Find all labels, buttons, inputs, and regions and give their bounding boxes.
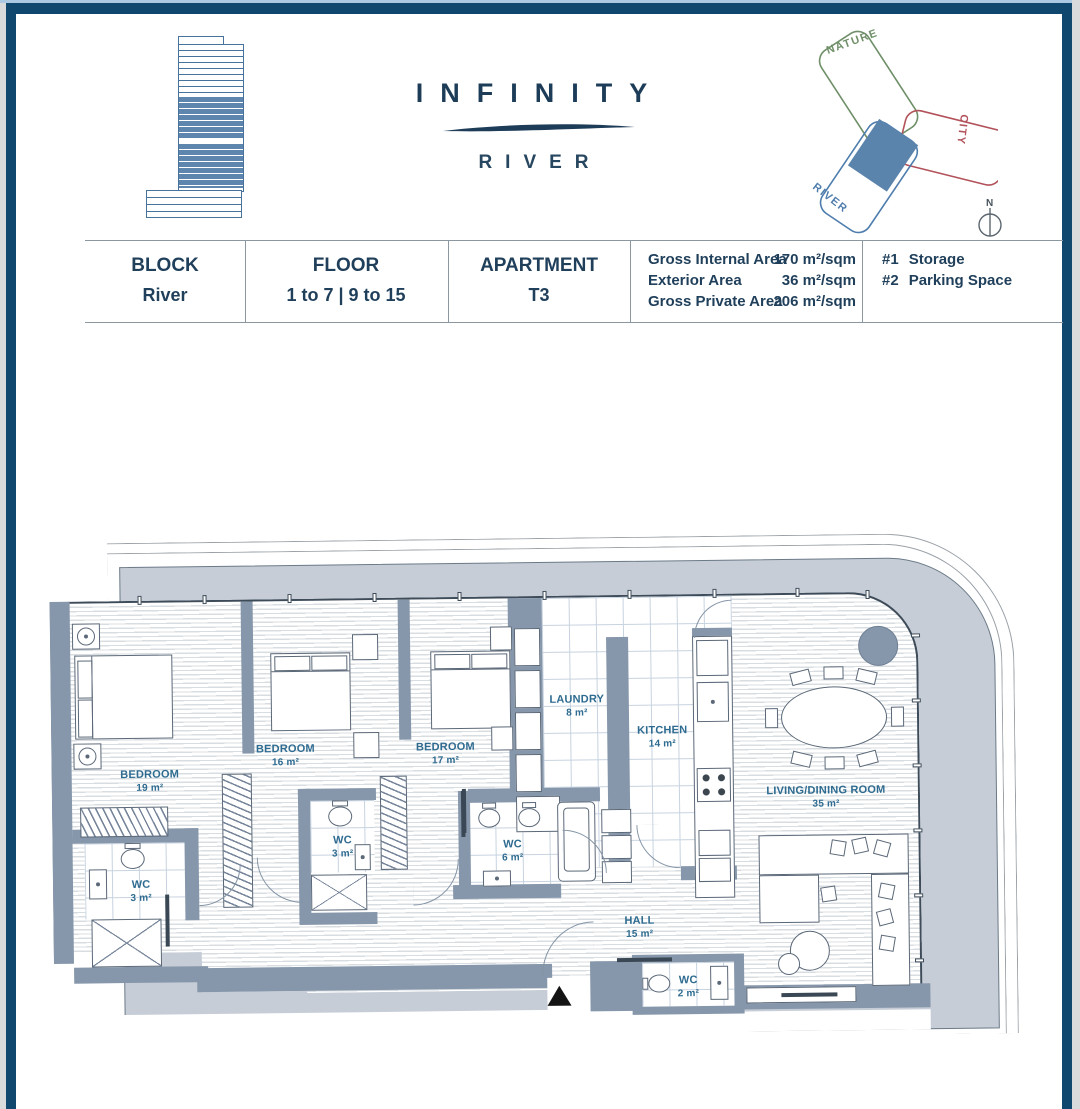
kitchen-cabinet <box>699 858 731 882</box>
room-label-laundry: LAUNDRY8 m² <box>549 693 604 720</box>
room-label-wc3a: WC3 m² <box>130 879 152 906</box>
extra-row: #2Parking Space <box>882 272 1012 289</box>
door-leaf <box>462 789 467 833</box>
room-label-wc3b: WC3 m² <box>332 834 354 861</box>
brand-subtitle: RIVER <box>390 152 690 174</box>
extra-label: Parking Space <box>909 272 1012 289</box>
room-label-kitchen: KITCHEN14 m² <box>637 724 688 751</box>
wall-hall-bottom-left <box>197 964 552 992</box>
brand-swoosh-icon <box>443 122 635 134</box>
cushion <box>820 885 837 902</box>
window-tick <box>372 593 376 602</box>
dining-chair <box>765 708 778 728</box>
area-value: 36 m²/sqm <box>782 272 856 289</box>
window-tick <box>712 589 716 598</box>
laundry-cabinet <box>514 670 540 708</box>
site-label-river: RIVER <box>810 181 850 216</box>
bed-1 <box>74 654 173 739</box>
window-tick <box>202 595 206 604</box>
tower-logo-icon <box>178 44 244 192</box>
wardrobe-bed3 <box>380 776 408 870</box>
area-name: Gross Internal Area <box>648 251 787 268</box>
nightstand <box>353 732 379 758</box>
window-tick <box>913 828 922 832</box>
nightstand <box>490 626 512 650</box>
floor-value: 1 to 7 | 9 to 15 <box>266 285 426 306</box>
wardrobe-bed1 <box>80 807 168 838</box>
window-tick <box>865 590 869 599</box>
tower-logo-base <box>146 190 242 218</box>
cushion <box>851 837 869 855</box>
extra-row: #1Storage <box>882 251 965 268</box>
nightstand <box>352 634 378 660</box>
terrace-mask <box>741 1009 931 1031</box>
site-label-city: CITY <box>954 114 970 146</box>
extra-num: #2 <box>882 272 899 289</box>
frame-border-left <box>6 3 16 1109</box>
dining-chair <box>823 666 843 679</box>
nightstand-speaker-icon <box>72 623 100 649</box>
apartment-value: T3 <box>469 285 609 306</box>
sink-icon <box>710 966 728 1000</box>
nightstand <box>491 726 513 750</box>
sink-icon <box>355 844 371 870</box>
cushion <box>879 935 896 952</box>
room-label-wc2: WC2 m² <box>677 974 699 1001</box>
floorplan-sheet: INFINITY RIVER NATURE CITY RIVER N BLOCK… <box>0 0 1080 1109</box>
kitchen-lower-cabinet <box>601 835 631 859</box>
extra-num: #1 <box>882 251 899 268</box>
shower-icon <box>311 874 367 911</box>
block-value: River <box>105 285 225 306</box>
bed-3 <box>430 650 511 729</box>
kitchen-cabinet <box>696 640 728 676</box>
area-name: Exterior Area <box>648 272 742 289</box>
dining-chair <box>891 707 904 727</box>
bed-2 <box>270 652 351 731</box>
laundry-cabinet <box>515 754 541 792</box>
area-value: 170 m²/sqm <box>773 251 856 268</box>
stove-icon <box>697 768 731 802</box>
site-plan-diagram: NATURE CITY RIVER <box>798 22 998 237</box>
wall-bed2-bed3 <box>398 600 412 740</box>
laundry-cabinet <box>515 712 541 750</box>
window-tick <box>457 592 461 601</box>
entrance-arrow-icon <box>547 986 571 1006</box>
window-tick <box>914 893 923 897</box>
frame-border-right <box>1062 3 1072 1109</box>
wall-wc3a-right <box>184 828 199 920</box>
tv-bench <box>746 986 856 1003</box>
bidet-tank <box>482 803 496 809</box>
room-label-bedroom3: BEDROOM17 m² <box>416 741 475 768</box>
sink-icon <box>483 870 511 886</box>
window-tick <box>542 591 546 600</box>
wall-bed1-bed2 <box>241 601 255 753</box>
toilet-tank <box>332 800 348 806</box>
page-edge-right <box>1072 0 1080 1109</box>
room-label-living: LIVING/DINING ROOM35 m² <box>766 784 885 812</box>
cushion <box>830 839 847 856</box>
window-tick <box>138 596 142 605</box>
info-table: BLOCK River FLOOR 1 to 7 | 9 to 15 APART… <box>85 240 1063 323</box>
extra-label: Storage <box>909 251 965 268</box>
toilet-tank <box>125 843 141 849</box>
sofa-table <box>759 875 820 924</box>
sink-icon <box>89 869 107 899</box>
shower-icon <box>91 919 162 968</box>
compass-north-label: N <box>986 198 993 209</box>
plant-icon <box>778 953 800 975</box>
room-label-hall: HALL15 m² <box>624 915 654 942</box>
room-label-bedroom2: BEDROOM16 m² <box>256 743 315 770</box>
floor-label: FLOOR <box>266 255 426 277</box>
room-label-wc6: WC6 m² <box>502 838 524 865</box>
window-tick <box>627 590 631 599</box>
room-label-bedroom1: BEDROOM19 m² <box>120 768 179 795</box>
brand-title: INFINITY <box>360 78 720 109</box>
kitchen-cabinet <box>698 830 730 856</box>
compass-icon: N <box>972 196 1008 240</box>
nightstand-speaker-icon <box>73 743 101 769</box>
wall-wc3b-bottom <box>299 912 377 925</box>
kitchen-lower-cabinet <box>601 809 631 833</box>
area-value: 206 m²/sqm <box>773 293 856 310</box>
area-name: Gross Private Area <box>648 293 783 310</box>
frame-border-top <box>6 3 1063 14</box>
dining-chair <box>825 756 845 769</box>
window-tick <box>912 698 921 702</box>
window-tick <box>795 588 799 597</box>
window-tick <box>915 958 924 962</box>
window-tick <box>287 594 291 603</box>
kitchen-sink <box>697 682 729 722</box>
door-leaf <box>617 957 672 962</box>
wall-wc3a-bottom <box>74 966 208 984</box>
door-leaf <box>165 895 170 947</box>
toilet-tank <box>522 802 536 808</box>
floor-plan: BEDROOM19 m² BEDROOM16 m² BEDROOM17 m² L… <box>37 532 1043 1064</box>
laundry-cabinet <box>514 628 540 666</box>
window-tick <box>911 633 920 637</box>
toilet-tank <box>642 978 648 990</box>
cushion <box>878 882 896 900</box>
window-tick <box>913 763 922 767</box>
apartment-label: APARTMENT <box>469 255 609 277</box>
wall-entry-block <box>590 961 637 1012</box>
block-label: BLOCK <box>105 255 225 277</box>
